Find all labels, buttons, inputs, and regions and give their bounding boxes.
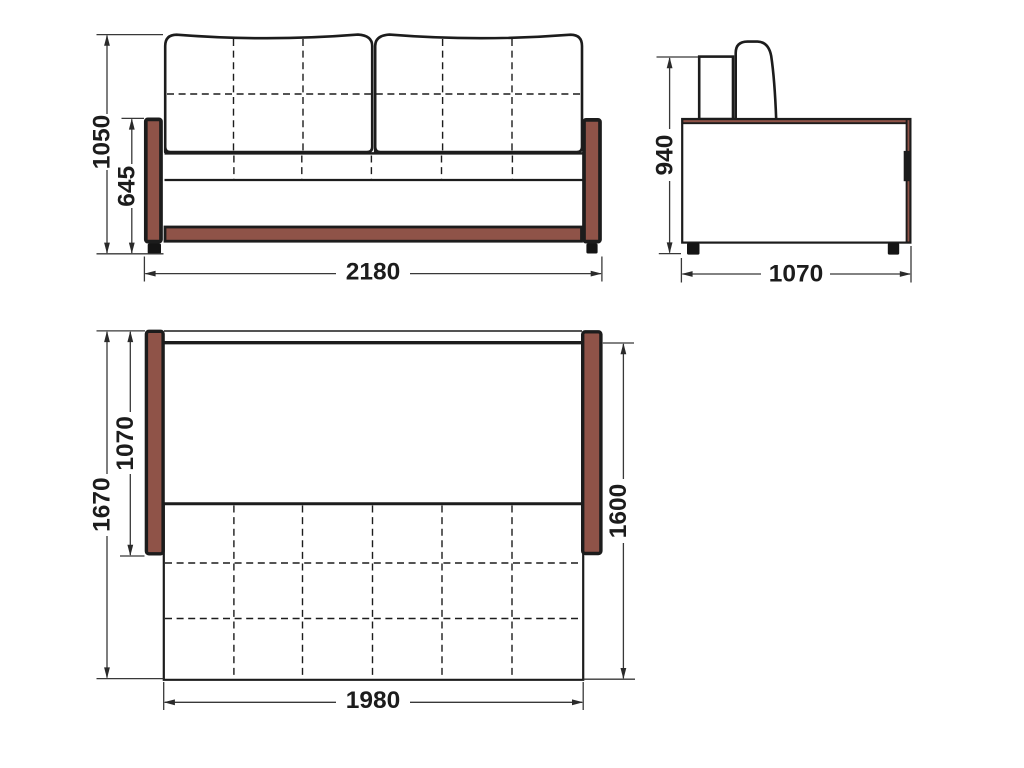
svg-text:1600: 1600 [605, 484, 632, 539]
svg-text:1050: 1050 [89, 115, 116, 170]
svg-text:1670: 1670 [89, 477, 116, 532]
svg-text:645: 645 [113, 166, 140, 207]
svg-text:2180: 2180 [346, 258, 401, 285]
svg-text:1070: 1070 [112, 416, 139, 471]
svg-text:1980: 1980 [346, 687, 401, 714]
svg-text:940: 940 [652, 135, 679, 176]
svg-text:1070: 1070 [769, 261, 824, 288]
